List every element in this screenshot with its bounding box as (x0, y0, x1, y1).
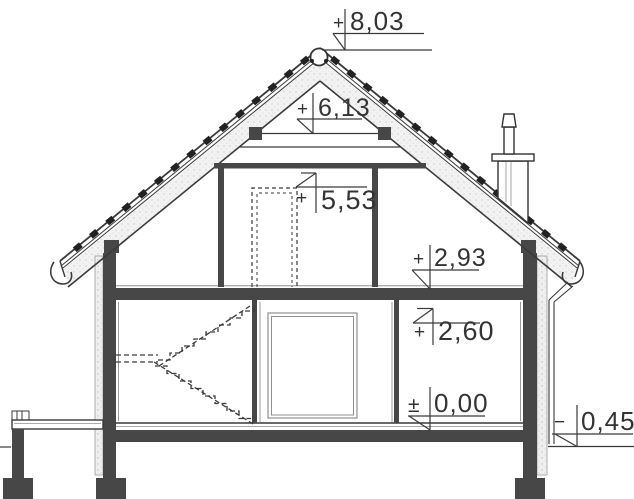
attic-partition-left (218, 168, 224, 287)
ridge-cap (310, 49, 328, 66)
level-sign: + (414, 322, 425, 343)
chimney-hat (502, 114, 516, 127)
level-sign: + (413, 249, 424, 270)
attic-flat-ceiling (214, 163, 426, 169)
chimney-cap-plate (492, 154, 534, 161)
level-value: 2,93 (434, 244, 487, 272)
level-value: 2,60 (438, 316, 495, 346)
gf-partition-right (394, 300, 399, 423)
chimney-flue-pipe (504, 127, 514, 154)
level-sign: + (333, 13, 344, 34)
purlin-left (249, 127, 262, 140)
left-exterior-wall (95, 240, 119, 478)
cross-section-drawing: + 8,03 + 6,13 + 5,53 + 2,93 + 2,60 ± (0, 0, 634, 499)
level-value: 6,13 (318, 94, 371, 122)
level-value: 5,53 (321, 185, 378, 215)
terrace-column (12, 429, 24, 478)
level-sign: − (554, 412, 565, 433)
level-sign: + (297, 99, 308, 120)
blueprint-canvas: + 8,03 + 6,13 + 5,53 + 2,93 + 2,60 ± (0, 0, 634, 499)
level-value: 0,45 (581, 406, 634, 436)
level-sign: + (296, 188, 307, 209)
purlin-right (378, 127, 391, 140)
level-value: 8,03 (350, 6, 405, 36)
level-value: 0,00 (434, 388, 489, 418)
level-sign: ± (408, 394, 420, 417)
gf-partition-left (252, 300, 257, 423)
right-exterior-wall (521, 240, 548, 478)
